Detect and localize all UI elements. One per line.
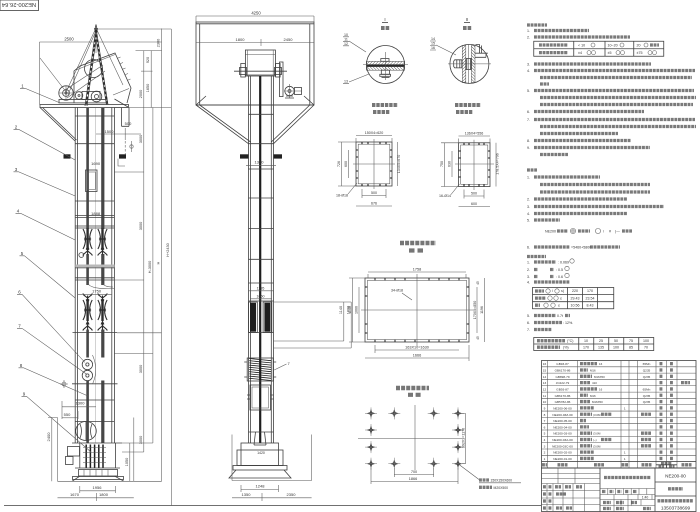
svg-text:676: 676: [371, 202, 377, 206]
svg-text:10: 10: [584, 339, 588, 343]
svg-text:3000: 3000: [139, 135, 143, 143]
svg-text:16: 16: [431, 46, 435, 50]
svg-text:3000: 3000: [139, 222, 143, 230]
svg-text:M16: M16: [590, 369, 596, 373]
svg-text:≤): ≤): [561, 289, 564, 293]
svg-text:GB898-79: GB898-79: [555, 375, 569, 379]
svg-text:13: 13: [543, 381, 547, 385]
svg-text:12: 12: [344, 42, 348, 46]
svg-text:±5: ±5: [608, 51, 612, 55]
svg-text:920: 920: [146, 57, 150, 63]
svg-text:10.56: 10.56: [571, 303, 580, 307]
svg-text:1.: 1.: [527, 29, 530, 33]
svg-text:NE200-03-00: NE200-03-00: [553, 432, 572, 436]
svg-text:NE200-04-00: NE200-04-00: [553, 425, 572, 429]
svg-text:Q235: Q235: [643, 375, 651, 379]
svg-text:1140: 1140: [348, 306, 352, 314]
svg-text:65Mn: 65Mn: [643, 362, 651, 366]
svg-text:1650: 1650: [146, 84, 150, 92]
svg-text:8.: 8.: [527, 139, 530, 143]
svg-text:11: 11: [543, 394, 546, 398]
svg-text:1800: 1800: [236, 37, 246, 42]
svg-text:NE200-01-00: NE200-01-00: [553, 457, 572, 461]
svg-text:178.5X4=706: 178.5X4=706: [495, 153, 499, 174]
svg-text:1670: 1670: [70, 492, 80, 497]
svg-text:H+2430: H+2430: [166, 243, 170, 256]
svg-text:1690: 1690: [91, 161, 101, 166]
svg-text:5.: 5.: [527, 219, 530, 223]
svg-text:170: 170: [583, 346, 589, 350]
svg-text:GB6170-86: GB6170-86: [555, 369, 571, 373]
svg-text:)—: )—: [615, 230, 620, 234]
svg-text:5.: 5.: [527, 314, 530, 318]
svg-text:NE200-06-00: NE200-06-00: [553, 406, 572, 410]
svg-text:NE200-03A-00: NE200-03A-00: [552, 438, 573, 442]
svg-text:M16X50: M16X50: [594, 375, 605, 379]
svg-text:6.: 6.: [527, 321, 530, 325]
svg-text:1300: 1300: [255, 160, 265, 165]
svg-text:163X10=1630: 163X10=1630: [405, 346, 429, 350]
svg-text:8: 8: [544, 413, 546, 417]
svg-text:Q235: Q235: [643, 394, 651, 398]
svg-text:(~): (~): [593, 438, 597, 442]
svg-text:6.: 6.: [527, 246, 530, 250]
svg-text:15: 15: [431, 42, 435, 46]
svg-text:600: 600: [471, 202, 477, 206]
svg-text:6: 6: [544, 425, 546, 429]
svg-text:1758: 1758: [413, 268, 421, 272]
svg-text:NE200: NE200: [545, 230, 556, 234]
svg-text:: 0.069: : 0.069: [558, 261, 569, 265]
svg-text:1: 1: [624, 451, 626, 455]
svg-text:3.: 3.: [527, 205, 530, 209]
svg-text:2.: 2.: [527, 198, 530, 202]
svg-text:1500: 1500: [105, 129, 115, 134]
svg-text:15: 15: [543, 369, 547, 373]
svg-text:45: 45: [476, 336, 480, 340]
svg-text:500: 500: [125, 121, 132, 126]
svg-text:GB93-87: GB93-87: [556, 387, 569, 391]
svg-text:/: /: [603, 230, 604, 234]
svg-text:8.43: 8.43: [587, 303, 594, 307]
svg-text:1300: 1300: [76, 401, 86, 406]
svg-text:600: 600: [344, 161, 348, 167]
svg-text:6.: 6.: [527, 110, 530, 114]
svg-text:150X150X600: 150X150X600: [491, 479, 513, 483]
svg-text:16: 16: [599, 387, 603, 391]
svg-text:NE200-03Z-00: NE200-03Z-00: [552, 413, 573, 417]
svg-text:500: 500: [471, 192, 477, 196]
svg-text:1: 1: [624, 457, 626, 461]
svg-text:45: 45: [476, 281, 480, 285]
svg-text:14: 14: [543, 375, 547, 379]
svg-text:13: 13: [344, 80, 348, 84]
svg-text:4.: 4.: [527, 281, 530, 285]
svg-text:1.: 1.: [527, 261, 530, 265]
svg-text:25: 25: [599, 339, 603, 343]
svg-text:GB93-87: GB93-87: [556, 362, 569, 366]
svg-text:±4: ±4: [578, 51, 582, 55]
svg-text:1:40: 1:40: [642, 496, 649, 500]
svg-text:1195: 1195: [257, 286, 265, 290]
svg-text:NE200-00: NE200-00: [665, 473, 686, 478]
svg-text:≤: ≤: [560, 296, 562, 300]
svg-text:1: 1: [624, 406, 626, 410]
svg-text:4: 4: [544, 438, 546, 442]
svg-text:726: 726: [337, 161, 341, 167]
svg-text:=5460+5800: =5460+5800: [571, 246, 591, 250]
svg-text:2.: 2.: [527, 36, 530, 40]
svg-text:NE200-26.64: NE200-26.64: [1, 1, 36, 7]
svg-text:GB6170-86: GB6170-86: [555, 394, 571, 398]
svg-text:4250: 4250: [251, 11, 261, 16]
svg-text:750: 750: [440, 161, 444, 167]
svg-text:≤: ≤: [558, 303, 560, 307]
svg-text:1050: 1050: [125, 458, 129, 466]
svg-text:20: 20: [637, 43, 641, 47]
svg-text:1956: 1956: [93, 485, 103, 490]
svg-text:(3.0M: (3.0M: [593, 444, 601, 448]
svg-text:392X3=1176: 392X3=1176: [461, 428, 465, 448]
svg-text:34-Ø18: 34-Ø18: [391, 289, 403, 293]
svg-text:2450: 2450: [284, 37, 294, 42]
svg-text:65Mn: 65Mn: [643, 387, 651, 391]
svg-text:75: 75: [629, 339, 633, 343]
svg-text:2400: 2400: [46, 432, 51, 442]
svg-text:136X4=556: 136X4=556: [465, 132, 484, 136]
svg-text:1196: 1196: [480, 306, 484, 314]
svg-text:2.: 2.: [527, 268, 530, 272]
svg-text:18-Ø18: 18-Ø18: [336, 194, 348, 198]
svg-text:14: 14: [431, 37, 435, 41]
svg-text:13503738699: 13503738699: [661, 506, 691, 512]
svg-text:0.7t: 0.7t: [557, 314, 563, 318]
svg-text:9: 9: [544, 406, 546, 410]
svg-text:12: 12: [543, 387, 547, 391]
svg-text:10: 10: [344, 33, 348, 37]
svg-text:9.: 9.: [527, 146, 530, 150]
svg-text:GB5782-86: GB5782-86: [555, 400, 571, 404]
svg-text:220: 220: [572, 289, 578, 293]
svg-text:NE200-05-00: NE200-05-00: [553, 419, 572, 423]
svg-text:1: 1: [544, 457, 546, 461]
svg-text:< 10: < 10: [578, 43, 585, 47]
svg-text:(3.0M: (3.0M: [593, 432, 601, 436]
svg-text:1750: 1750: [92, 289, 102, 294]
svg-text:(%): (%): [563, 346, 569, 350]
svg-text:/: /: [552, 289, 553, 293]
svg-text:16: 16: [543, 362, 547, 366]
svg-text:16-Ø14: 16-Ø14: [439, 194, 451, 198]
svg-text:4.: 4.: [527, 212, 530, 216]
svg-text:3: 3: [544, 444, 546, 448]
svg-text:3000: 3000: [139, 365, 143, 373]
svg-text:700: 700: [411, 470, 417, 474]
svg-text:2300: 2300: [156, 39, 160, 47]
svg-text:NE200-02-00: NE200-02-00: [553, 451, 572, 455]
svg-text:410: 410: [592, 381, 597, 385]
svg-text:630: 630: [448, 161, 452, 167]
svg-text:(3.0M: (3.0M: [593, 413, 601, 417]
svg-text:1666: 1666: [413, 354, 421, 358]
svg-text:134X5=670: 134X5=670: [397, 155, 401, 174]
svg-text:Q235: Q235: [643, 400, 651, 404]
svg-text:H: H: [157, 261, 161, 264]
svg-text:23.54: 23.54: [586, 296, 595, 300]
svg-text:±75: ±75: [637, 51, 643, 55]
svg-text:170: 170: [587, 289, 593, 293]
svg-text:100: 100: [643, 339, 649, 343]
svg-text:50: 50: [614, 339, 618, 343]
svg-text:JC222-79: JC222-79: [556, 381, 570, 385]
svg-text:1066: 1066: [355, 306, 359, 314]
svg-text:16: 16: [599, 362, 603, 366]
svg-text:7.: 7.: [527, 118, 530, 122]
svg-text:1420: 1420: [257, 451, 265, 455]
svg-text:1866: 1866: [409, 477, 417, 481]
svg-text:4.: 4.: [527, 69, 530, 73]
svg-text:10: 10: [543, 400, 547, 404]
svg-text:: 0.5: : 0.5: [556, 268, 563, 272]
svg-text:10~20: 10~20: [608, 43, 618, 47]
svg-text:1140: 1140: [339, 306, 343, 314]
svg-text:29.43: 29.43: [571, 296, 580, 300]
svg-text:(°C): (°C): [567, 339, 573, 343]
svg-text:2350: 2350: [287, 492, 297, 497]
svg-text:M20X500: M20X500: [494, 486, 509, 490]
svg-text:M16X50: M16X50: [592, 400, 603, 404]
svg-text:2500: 2500: [64, 37, 74, 42]
svg-text:500: 500: [371, 191, 377, 195]
svg-text:5.: 5.: [527, 89, 530, 93]
svg-text:Q235: Q235: [643, 369, 651, 373]
svg-text:170X5=850: 170X5=850: [473, 301, 477, 320]
svg-text:II: II: [466, 17, 469, 22]
svg-text:150X4=620: 150X4=620: [365, 131, 384, 135]
svg-text:: 12%.: : 12%.: [563, 321, 573, 325]
svg-text:1350: 1350: [242, 492, 252, 497]
svg-text:3.: 3.: [527, 275, 530, 279]
svg-text:: 0.6: : 0.6: [556, 275, 563, 279]
svg-text:100: 100: [613, 346, 619, 350]
svg-text:2000: 2000: [139, 90, 143, 98]
svg-text:70: 70: [644, 346, 648, 350]
svg-text:7: 7: [544, 419, 546, 423]
svg-text:5: 5: [544, 432, 546, 436]
svg-text:3.: 3.: [527, 63, 530, 67]
svg-text:1800: 1800: [99, 492, 109, 497]
svg-text:H-3000: H-3000: [148, 261, 152, 273]
svg-text:I: I: [384, 17, 385, 22]
svg-text:11: 11: [344, 38, 348, 42]
svg-text:NE200-03C-00: NE200-03C-00: [552, 444, 573, 448]
svg-text:135: 135: [598, 346, 604, 350]
svg-text:7.: 7.: [527, 328, 530, 332]
svg-text:1888: 1888: [91, 211, 101, 216]
svg-text:1.: 1.: [527, 176, 530, 180]
svg-text:2: 2: [544, 451, 546, 455]
svg-text:550: 550: [64, 412, 71, 417]
svg-text:1248: 1248: [256, 484, 266, 489]
svg-text:M16: M16: [590, 394, 596, 398]
svg-text:1060: 1060: [257, 294, 265, 298]
svg-text:85: 85: [629, 346, 633, 350]
